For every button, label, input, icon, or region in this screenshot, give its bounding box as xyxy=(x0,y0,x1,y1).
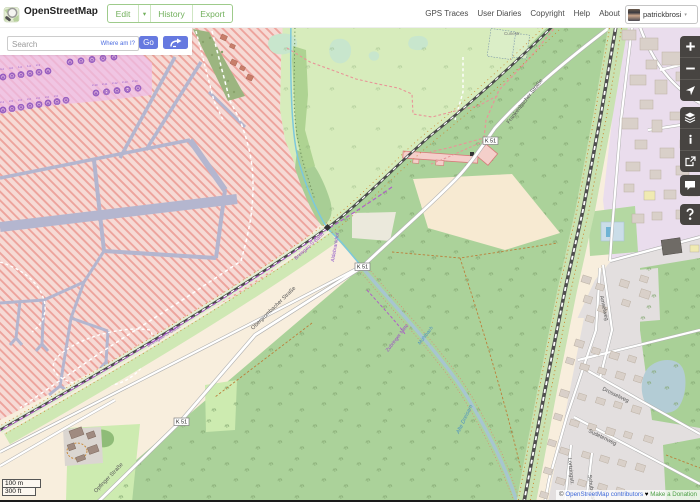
svg-text:2-5: 2-5 xyxy=(9,99,13,103)
svg-text:2-11: 2-11 xyxy=(102,82,108,86)
svg-text:1-0: 1-0 xyxy=(27,64,31,68)
svg-text:2-13: 2-13 xyxy=(122,80,128,84)
svg-text:4-0: 4-0 xyxy=(9,66,13,70)
svg-text:2-3: 2-3 xyxy=(36,63,40,67)
svg-text:2-0: 2-0 xyxy=(27,97,31,101)
svg-text:2-12: 2-12 xyxy=(112,81,118,85)
svg-text:2-0: 2-0 xyxy=(54,94,58,98)
svg-text:2-14: 2-14 xyxy=(132,79,138,83)
svg-text:K 51: K 51 xyxy=(176,420,187,426)
svg-text:2-0: 2-0 xyxy=(45,95,49,99)
svg-text:2-4: 2-4 xyxy=(0,100,4,104)
svg-text:2-10: 2-10 xyxy=(92,83,98,87)
svg-text:K 51: K 51 xyxy=(357,265,368,271)
svg-text:1-0: 1-0 xyxy=(18,65,22,69)
svg-text:4-2: 4-2 xyxy=(0,67,4,71)
svg-text:2-6: 2-6 xyxy=(18,98,22,102)
svg-text:K 51: K 51 xyxy=(485,139,496,145)
svg-text:Curiestr.: Curiestr. xyxy=(504,31,521,36)
svg-text:2-0: 2-0 xyxy=(36,96,40,100)
